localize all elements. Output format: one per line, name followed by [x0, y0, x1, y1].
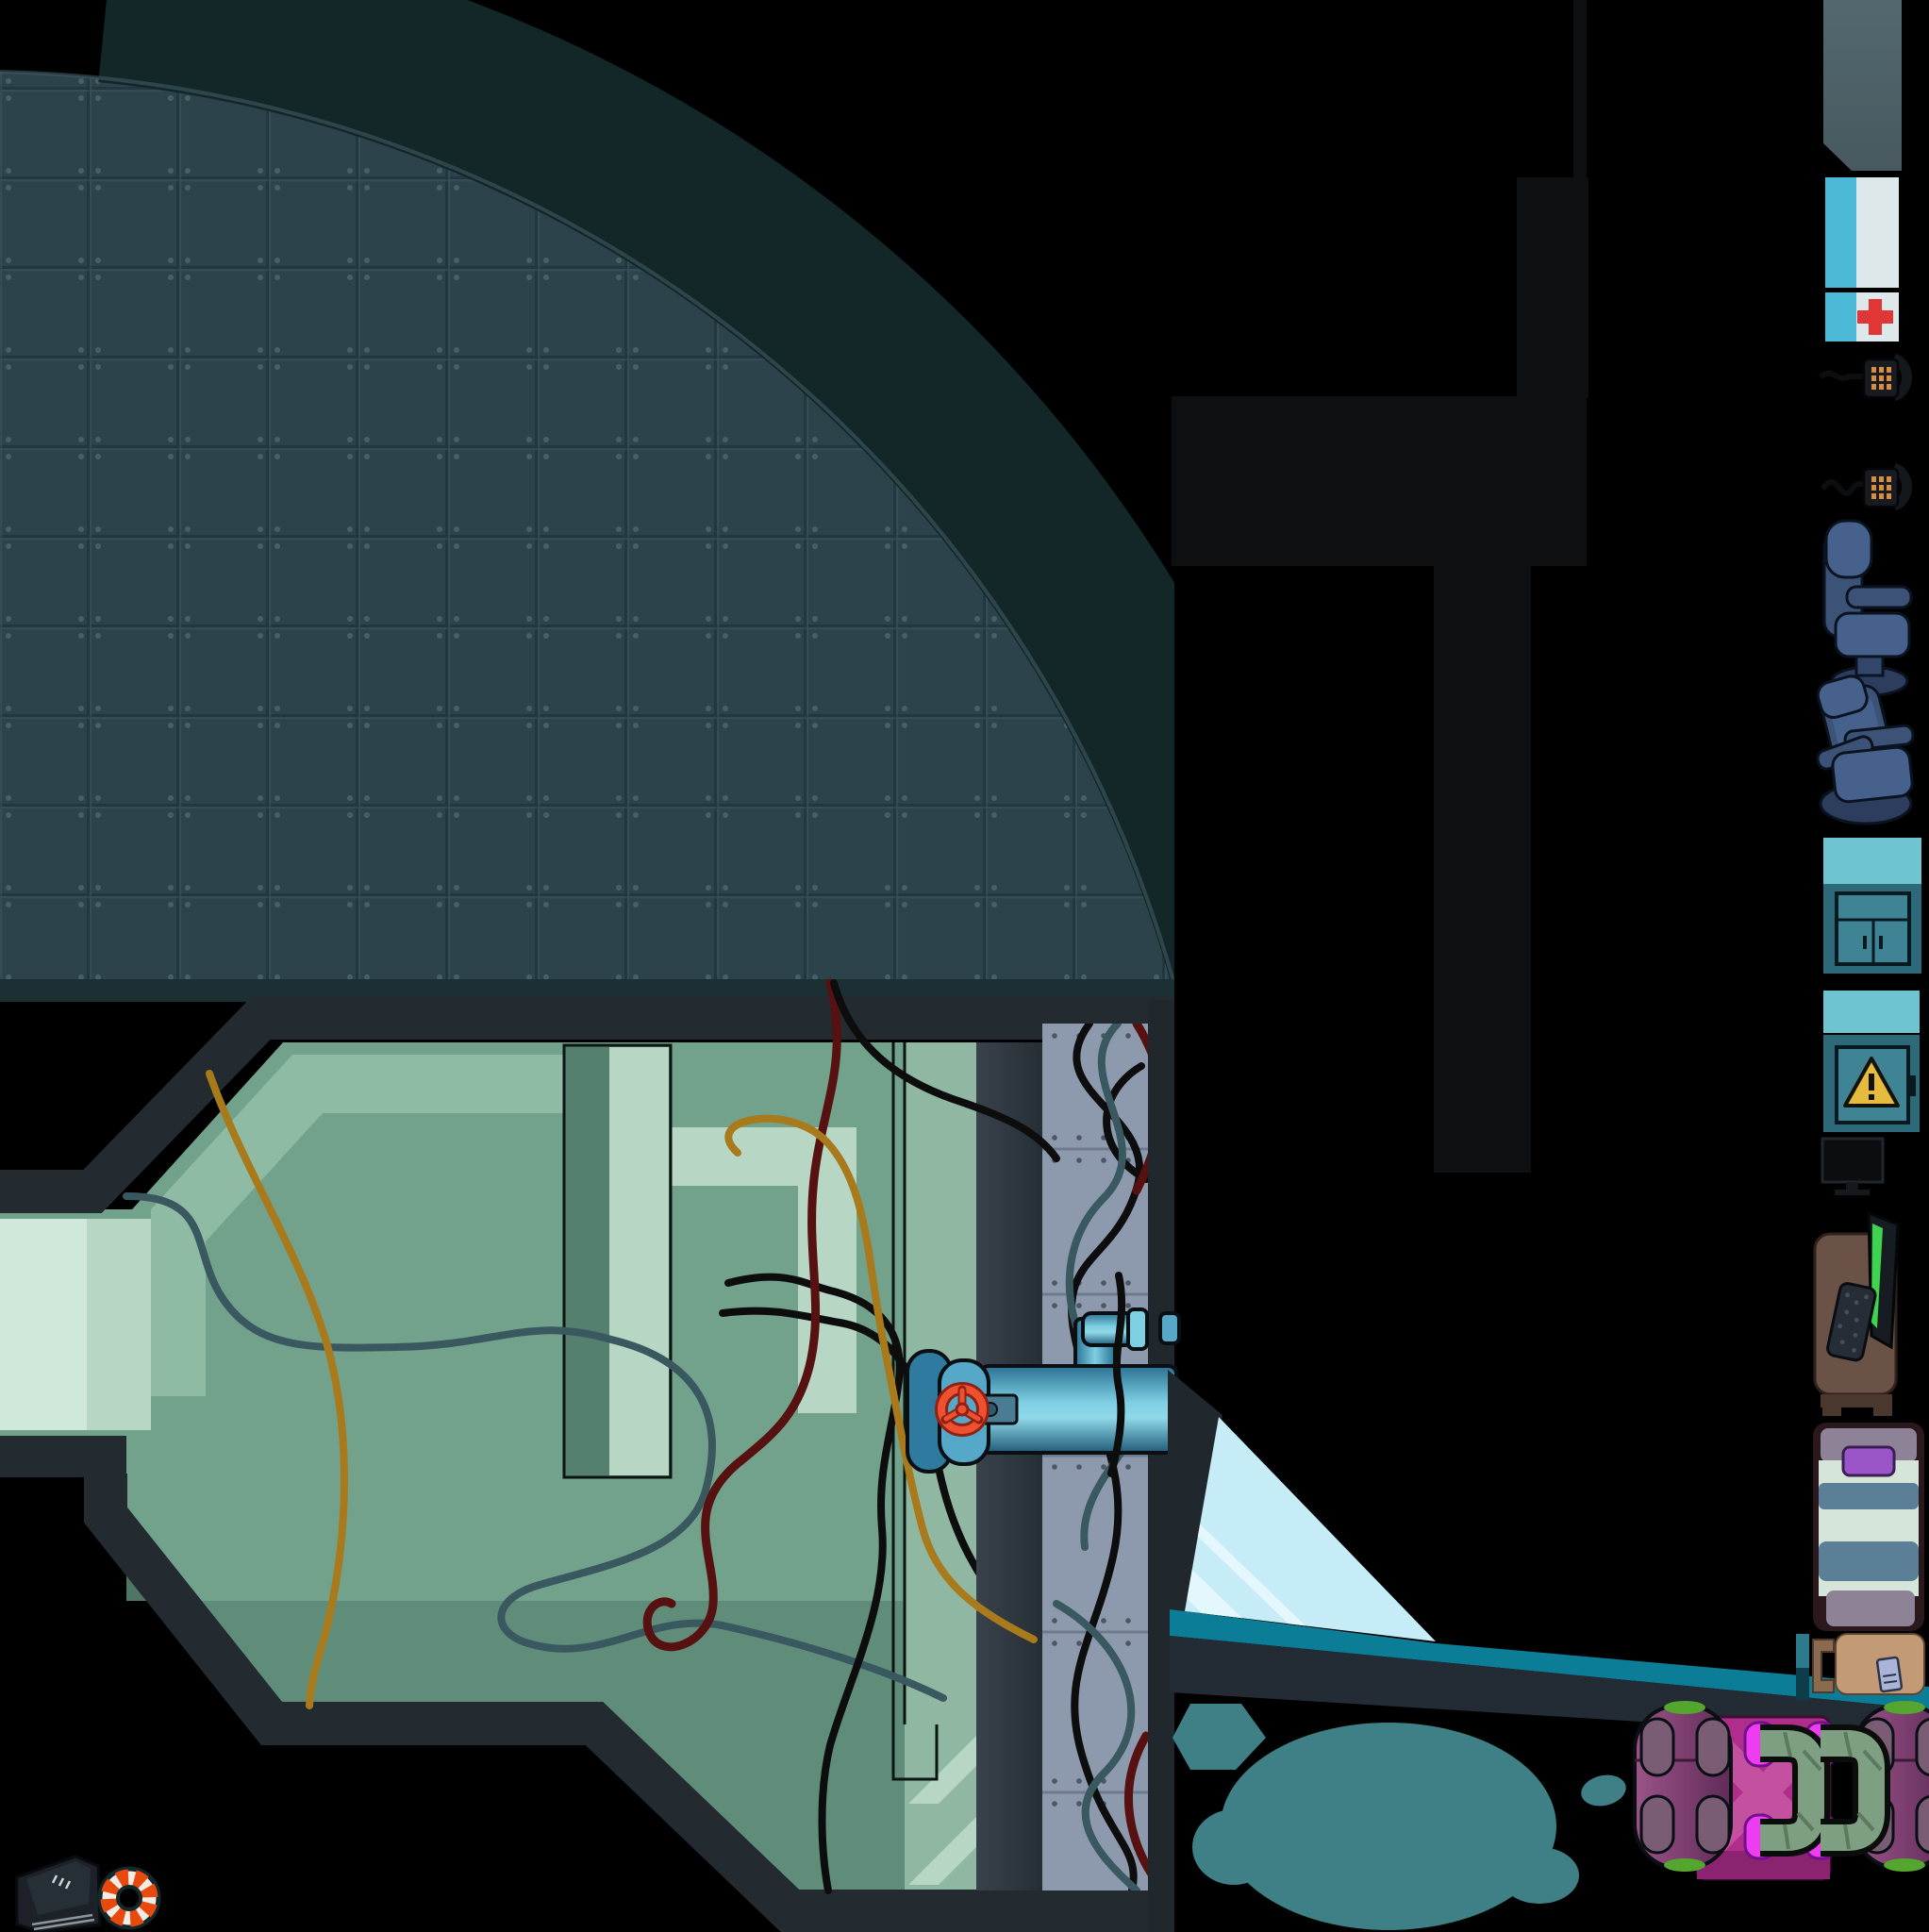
- nightstand[interactable]: [1796, 1634, 1924, 1700]
- skeleton-horizontal-block: [1172, 396, 1587, 566]
- floor-slot-inset: [564, 1045, 671, 1477]
- electrical-panel[interactable]: [1823, 991, 1920, 1132]
- bed[interactable]: [1813, 1423, 1924, 1631]
- charcoal-band: [976, 1042, 1042, 1890]
- reactor-tanks[interactable]: [1635, 1701, 1929, 1879]
- tank-left: [1635, 1701, 1731, 1872]
- lifebuoy-hole: [118, 1887, 141, 1909]
- corridor-light-patch: [87, 1219, 151, 1430]
- medkit[interactable]: [1825, 177, 1899, 341]
- puddle-large: [1221, 1723, 1556, 1930]
- lifebuoy[interactable]: [100, 1869, 158, 1927]
- upload-desk[interactable]: [1815, 1213, 1898, 1416]
- wiring-room-right-wall: [976, 1000, 1174, 1932]
- panel-handle: [1909, 1075, 1916, 1096]
- cabinet[interactable]: [1823, 838, 1921, 974]
- valve-wheel[interactable]: [941, 1389, 983, 1430]
- edge-sliver-dark: [1796, 1668, 1809, 1700]
- corridor-pale-patch: [0, 1219, 87, 1430]
- edge-sliver-teal: [1796, 1634, 1809, 1668]
- notepad: [1877, 1657, 1903, 1692]
- puddle-bump-right: [1500, 1847, 1579, 1904]
- phone-keypad: [1871, 476, 1891, 499]
- texture-atlas-canvas: [0, 0, 1929, 1932]
- skeleton-upper-bar: [1517, 177, 1588, 398]
- atlas-svg: [0, 0, 1929, 1932]
- puddle-bump-left: [1192, 1809, 1275, 1885]
- skeleton-vertical-bar: [1434, 564, 1531, 1173]
- gray-slab[interactable]: [1823, 0, 1902, 171]
- pillow: [1843, 1447, 1894, 1475]
- skeleton-thin-line: [1573, 0, 1587, 179]
- phone-keypad: [1871, 367, 1891, 390]
